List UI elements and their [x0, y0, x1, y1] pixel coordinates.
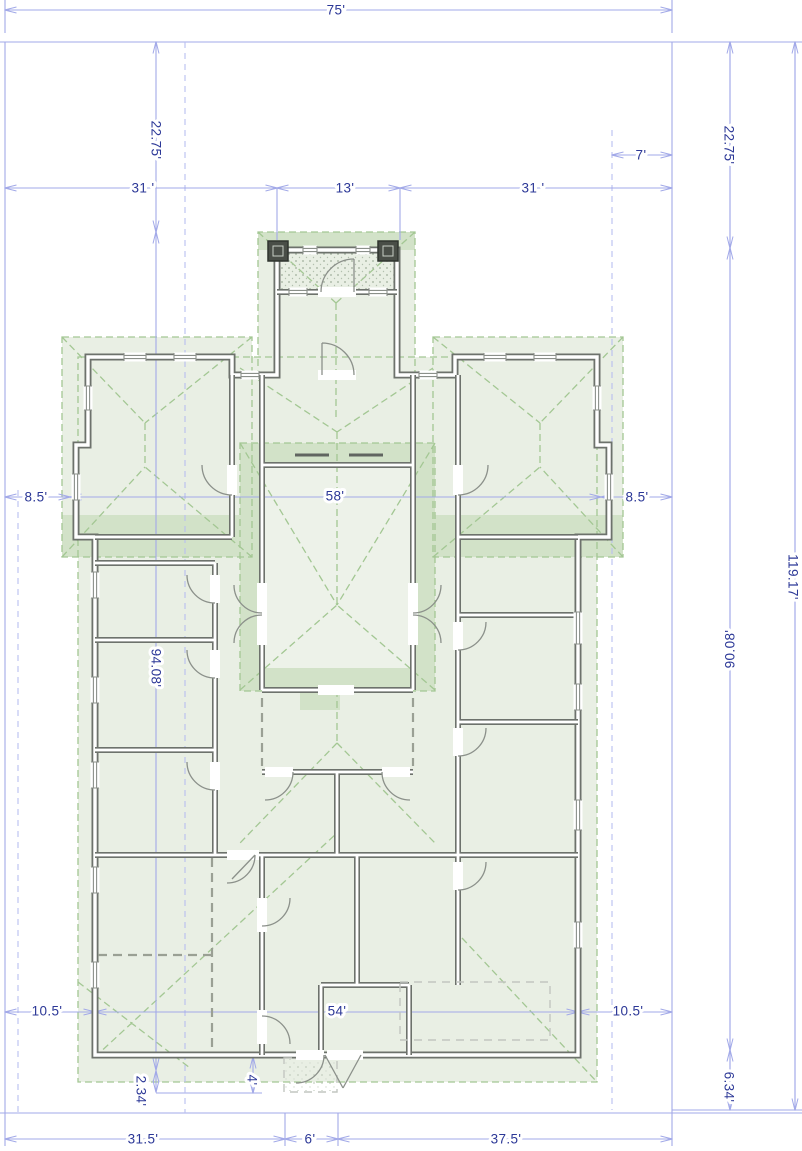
dimension-label-body-depth-right: 90.08'	[723, 630, 738, 669]
dimension-label-top-left-width: 31 '	[132, 181, 155, 196]
window-symbol	[303, 246, 317, 255]
window-symbol	[574, 612, 583, 644]
dimension-label-top-right-width: 31 '	[522, 181, 545, 196]
window-symbol	[91, 867, 100, 893]
dimension-label-bottom-left-width: 31.5'	[128, 1132, 159, 1147]
dimension-label-right-top-depth: 22.75'	[722, 126, 737, 165]
window-symbol	[91, 677, 100, 703]
window-symbol	[84, 386, 93, 410]
dimension-label-bottom-left-inset: 10.5'	[32, 1004, 63, 1019]
dimension-label-door-offset: 4'	[245, 1075, 260, 1086]
window-symbol	[174, 353, 196, 362]
floor-plan-canvas: 75'22.75'7'31 '13'31 '22.75'8.5'58'8.5'1…	[0, 0, 802, 1151]
stoop-stipple	[285, 1059, 336, 1091]
window-symbol	[91, 762, 100, 788]
window-symbol	[574, 684, 583, 710]
dimension-label-left-top-depth: 22.75'	[149, 121, 164, 160]
window-symbol	[356, 246, 370, 255]
window-symbol	[289, 288, 307, 297]
dimension-label-left-side-offset: 8.5'	[25, 490, 48, 505]
window-symbol	[241, 371, 259, 380]
dimension-label-bottom-right-width: 37.5'	[491, 1132, 522, 1147]
dimension-label-bottom-center-width: 6'	[305, 1132, 316, 1147]
window-symbol	[574, 800, 583, 830]
window-symbol	[124, 353, 146, 362]
window-symbol	[72, 474, 81, 500]
dimension-label-porch-side-offset: 7'	[636, 148, 647, 163]
dimension-label-right-bottom-depth: 6.34'	[722, 1072, 737, 1103]
dimension-label-stoop-depth: 2.34'	[134, 1076, 149, 1107]
window-symbol	[91, 962, 100, 988]
window-symbol	[419, 371, 437, 380]
window-symbol	[593, 386, 602, 410]
floor-plan-drawing: 75'22.75'7'31 '13'31 '22.75'8.5'58'8.5'1…	[0, 0, 802, 1151]
window-symbol	[484, 353, 506, 362]
window-symbol	[605, 474, 614, 500]
window-symbol	[369, 288, 387, 297]
dimension-label-porch-width: 13'	[336, 181, 355, 196]
dimension-label-overall-depth: 119.17'	[786, 554, 801, 600]
dimension-label-bottom-right-inset: 10.5'	[613, 1004, 644, 1019]
dimension-label-overall-width: 75'	[327, 3, 346, 18]
dimension-label-bottom-body-width: 54'	[328, 1004, 347, 1019]
window-symbol	[534, 353, 556, 362]
window-symbol	[91, 572, 100, 598]
porch-deck-stipple	[280, 253, 394, 290]
dimension-label-body-width: 58'	[326, 489, 345, 504]
dimension-label-right-side-offset: 8.5'	[626, 490, 649, 505]
dimension-label-body-depth-left: 94.08'	[149, 649, 164, 688]
window-symbol	[574, 922, 583, 948]
